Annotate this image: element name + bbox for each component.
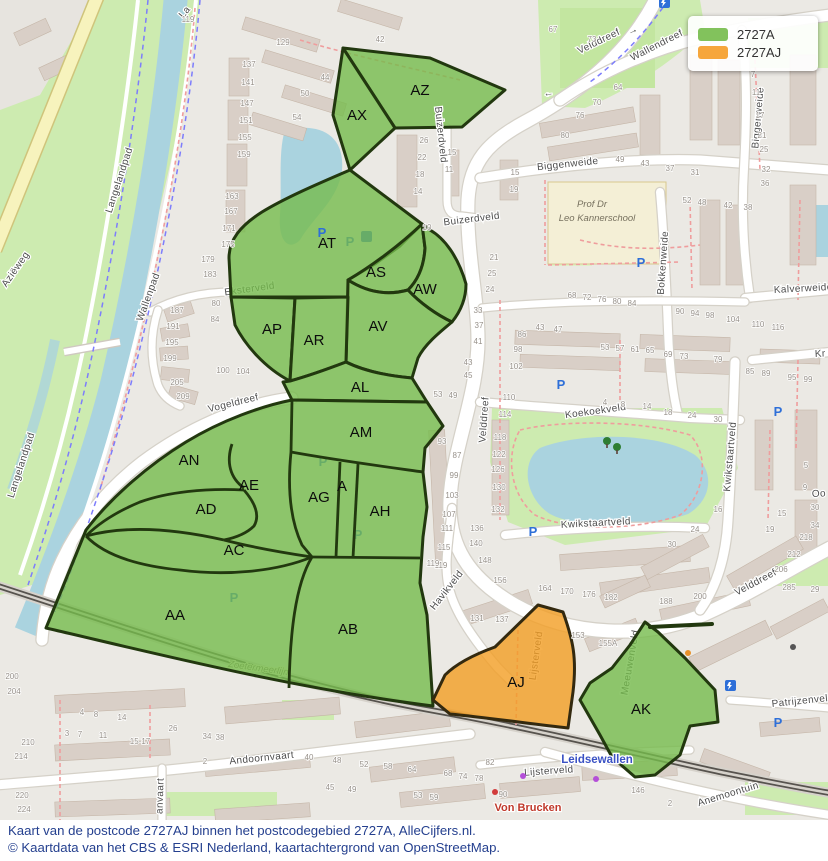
house-number: 8 [621,400,626,409]
house-number: 200 [693,592,707,601]
house-number: 111 [441,524,454,533]
house-number: 26 [420,136,429,145]
building [700,200,720,285]
legend-item: 2727A [698,27,808,42]
legend: 2727A2727AJ [688,16,818,71]
house-number: 15 [448,148,457,157]
region-label-AL: AL [351,379,369,396]
poi-dot [593,776,599,782]
house-number: 84 [211,315,220,324]
house-number: 116 [772,323,785,332]
region-boundary [291,400,292,452]
charging-station-icon [659,0,670,8]
house-number: 61 [631,345,640,354]
house-number: 132 [491,505,505,514]
house-number: 80 [561,131,570,140]
house-number: 98 [706,311,715,320]
poi-label: Von Brucken [494,802,561,814]
house-number: 153 [571,631,585,640]
region-label-AS: AS [366,264,386,281]
house-number: 3 [65,729,70,738]
house-number: 19 [766,525,775,534]
house-number: 147 [240,99,254,108]
building [790,185,816,265]
building [640,95,660,155]
house-number: 148 [478,556,492,565]
house-number: 68 [568,291,577,300]
house-number: 34 [811,521,820,530]
house-number: 14 [643,402,652,411]
house-number: 118 [494,433,507,442]
house-number: 22 [418,153,427,162]
house-number: 8 [94,710,99,719]
house-number: 76 [576,111,585,120]
house-number: 33 [474,306,483,315]
house-number: 82 [486,758,495,767]
house-number: 74 [459,772,468,781]
legend-item: 2727AJ [698,45,808,60]
house-number: 179 [201,255,215,264]
tree-trunk [616,450,618,454]
house-number: 45 [464,371,473,380]
building [397,135,417,207]
house-number: 7 [78,730,83,739]
house-number: 94 [691,309,700,318]
region-label-A: A [337,478,347,495]
house-number: 131 [470,614,484,623]
house-number: 14 [414,187,423,196]
house-number: 68 [444,769,453,778]
house-number: 86 [518,330,527,339]
region-label-AJ: AJ [507,674,525,691]
house-number: 48 [333,756,342,765]
house-number: 164 [538,584,552,593]
legend-label: 2727A [737,27,775,42]
house-number: 42 [376,35,385,44]
street-label: Prof Dr [577,199,608,210]
house-number: 15 [778,509,787,518]
house-number: 43 [536,323,545,332]
house-number: 42 [724,201,733,210]
house-number: 129 [276,38,290,47]
house-number: 141 [241,78,255,87]
house-number: 100 [216,366,230,375]
house-number: 40 [305,753,314,762]
house-number: 25 [488,269,497,278]
house-number: 53 [601,343,610,352]
house-number: 7 [751,70,756,79]
house-number: 36 [761,179,770,188]
house-number: 43 [641,159,650,168]
house-number: 14 [118,713,127,722]
poi-dot [520,773,526,779]
region-label-AZ: AZ [410,82,429,99]
house-number: 220 [15,791,29,800]
street-label: ← [543,87,555,99]
house-number: 44 [321,73,330,82]
street-label: Leo Kannerschool [559,213,636,224]
house-number: 52 [360,760,369,769]
house-number: 119 [182,15,195,24]
house-number: 73 [588,35,597,44]
region-label-AM: AM [350,424,373,441]
house-number: 54 [293,113,302,122]
house-number: 140 [469,539,483,548]
house-number: 52 [683,196,692,205]
house-number: 24 [486,285,495,294]
house-number: 199 [163,354,177,363]
house-number: 72 [583,293,592,302]
house-number: 21 [758,131,767,140]
region-label-AH: AH [370,503,391,520]
house-number: 4 [603,398,608,407]
house-number: 104 [236,367,250,376]
house-number: 50 [301,89,310,98]
house-number: 155A [599,639,618,648]
tree-trunk [606,444,608,448]
house-number: 99 [450,471,459,480]
house-number: 11 [445,165,454,174]
station-label: Leidsewallen [561,754,633,766]
parking-icon: P [637,255,646,270]
house-number: 93 [438,437,447,446]
house-number: 151 [239,116,253,125]
house-number: 18 [416,170,425,179]
house-number: 210 [21,738,35,747]
house-number: 87 [453,451,462,460]
house-number: 204 [7,687,21,696]
house-number: 32 [762,165,771,174]
house-number: 104 [726,315,740,324]
street-label: anvaart [154,778,166,815]
postcode-map-page: EksterveldLijsterveldMeeuwenveldZoeterme… [0,0,828,861]
region-label-AP: AP [262,321,282,338]
region-label-AR: AR [304,332,325,349]
house-number: 102 [509,362,523,371]
house-number: 2 [203,757,208,766]
region-label-AA: AA [165,607,185,624]
house-number: 191 [166,322,180,331]
house-number: 137 [242,60,256,69]
house-number: 79 [714,355,723,364]
house-number: 30 [668,540,677,549]
poi-dot [492,789,498,795]
house-number: 110 [752,320,765,329]
house-number: 30 [811,503,820,512]
house-number: 136 [470,524,484,533]
house-number: 90 [676,307,685,316]
region-label-AD: AD [196,501,217,518]
house-number: 59 [430,793,439,802]
house-number: 31 [691,168,700,177]
region-label-AX: AX [347,107,367,124]
region-label-AN: AN [179,452,200,469]
house-number: 48 [698,198,707,207]
street-label: Oo [812,488,827,500]
parking-icon: P [557,377,566,392]
house-number: 95 [788,373,797,382]
region-label-AE: AE [239,477,259,494]
house-number: 130 [492,483,506,492]
house-number: 195 [165,338,179,347]
house-number: 285 [782,583,796,592]
house-number: 21 [490,253,499,262]
house-number: 78 [475,774,484,783]
parking-icon: P [774,715,783,730]
house-number: 76 [598,295,607,304]
house-number: 175 [221,240,235,249]
house-number: 49 [616,155,625,164]
house-number: 38 [744,203,753,212]
house-number: 163 [225,192,239,201]
legend-label: 2727AJ [737,45,781,60]
house-number: 115 [438,543,451,552]
house-number: 155 [238,133,252,142]
house-number: 200 [5,672,19,681]
street-label: Kr [815,348,827,360]
house-number: 67 [549,25,558,34]
house-number: 114 [499,410,512,419]
poi-dot [790,644,796,650]
house-number: 19 [510,185,519,194]
region-label-AV: AV [369,318,388,335]
house-number: 122 [492,450,506,459]
house-number: 30 [714,415,723,424]
building [795,410,817,490]
house-number: 73 [680,352,689,361]
map-canvas: EksterveldLijsterveldMeeuwenveldZoeterme… [0,0,828,820]
house-number: 212 [787,550,801,559]
house-number: 159 [237,150,251,159]
house-number: 58 [384,762,393,771]
poi-dot [685,650,691,656]
house-number: 70 [593,98,602,107]
caption: Kaart van de postcode 2727AJ binnen het … [0,820,828,861]
house-number: 45 [326,783,335,792]
house-number: 15-17 [130,737,151,746]
house-number: 29 [811,585,820,594]
parking-icon: P [318,225,327,240]
house-number: 53 [434,390,443,399]
house-number: 64 [614,83,623,92]
house-number: 64 [408,765,417,774]
house-number: 49 [449,391,458,400]
building [718,60,740,145]
house-number: 10 [423,223,432,232]
house-number: 9 [803,483,808,492]
house-number: 38 [216,733,225,742]
house-number: 107 [442,510,456,519]
house-number: 126 [491,465,505,474]
region-label-AW: AW [413,281,437,298]
house-number: 37 [666,164,675,173]
house-number: 80 [212,299,221,308]
house-number: 34 [203,732,212,741]
house-number: 89 [762,369,771,378]
house-number: 171 [222,224,236,233]
house-number: 85 [746,367,755,376]
house-number: 24 [691,525,700,534]
region-boundary [312,557,420,558]
house-number: 137 [495,615,509,624]
house-number: 187 [170,306,184,315]
house-number: 110 [503,393,516,402]
caption-line1: Kaart van de postcode 2727AJ binnen het … [8,823,828,840]
house-number: 167 [224,207,238,216]
house-number: 146 [631,786,645,795]
tree-icon [603,437,611,445]
parking-icon: P [774,404,783,419]
house-number: 90 [499,790,508,799]
house-number: 69 [664,350,673,359]
house-number: 214 [14,752,28,761]
house-number: 119 [427,559,440,568]
house-number: 218 [799,533,813,542]
house-number: 170 [560,587,574,596]
house-number: 37 [475,321,484,330]
house-number: 24 [688,411,697,420]
legend-swatch-2727A [698,28,728,41]
house-number: 11 [99,731,108,740]
house-number: 182 [604,593,618,602]
house-number: 17 [756,111,765,120]
house-number: 41 [474,337,483,346]
caption-line2: © Kaartdata van het CBS & ESRI Nederland… [8,840,828,857]
house-number: 53 [414,791,423,800]
house-number: 224 [17,805,31,814]
house-number: 15 [511,168,520,177]
tree-icon [613,443,621,451]
region-label-AC: AC [224,542,245,559]
house-number: 99 [804,375,813,384]
region-label-AK: AK [631,701,651,718]
house-number: 26 [169,724,178,733]
house-number: 209 [176,392,190,401]
region-label-AB: AB [338,621,358,638]
house-number: 80 [613,297,622,306]
house-number: 188 [659,597,673,606]
house-number: 205 [170,378,184,387]
house-number: 2 [668,799,673,808]
house-number: 206 [774,565,788,574]
house-number: 156 [493,576,507,585]
house-number: 25 [760,145,769,154]
house-number: 176 [582,590,596,599]
house-number: 98 [514,345,523,354]
parking-icon: P [529,524,538,539]
house-number: 11 [752,88,761,97]
house-number: 57 [616,344,625,353]
house-number: 84 [628,299,637,308]
legend-swatch-2727AJ [698,46,728,59]
house-number: 47 [554,325,563,334]
house-number: 49 [348,785,357,794]
house-number: 4 [80,708,85,717]
house-number: 5 [804,461,809,470]
house-number: 18 [664,408,673,417]
region-label-AG: AG [308,489,330,506]
house-number: 183 [203,270,217,279]
house-number: 65 [646,346,655,355]
house-number: 103 [445,491,459,500]
house-number: 16 [714,505,723,514]
house-number: 43 [464,358,473,367]
